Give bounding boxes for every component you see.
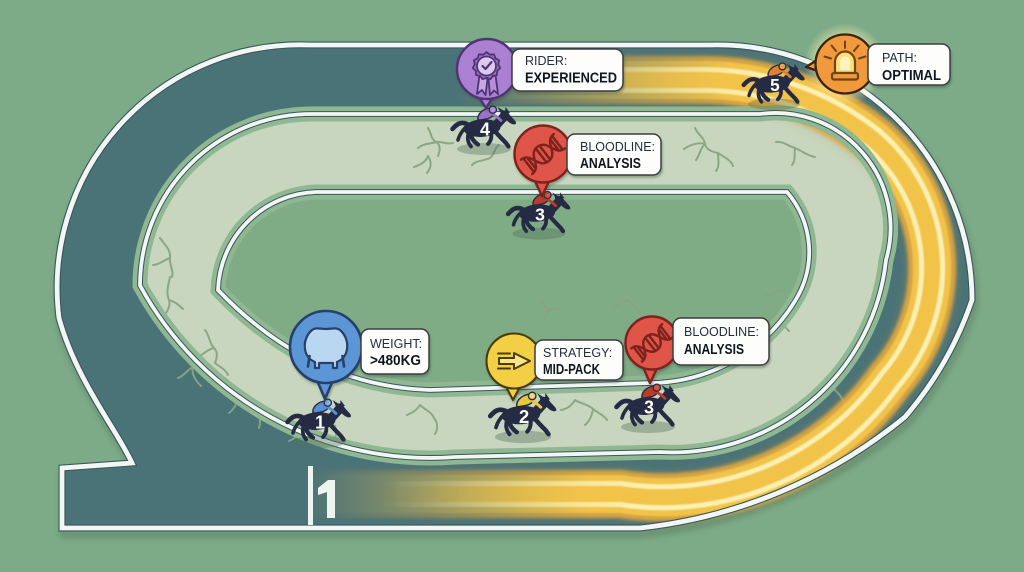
svg-text:BLOODLINE:: BLOODLINE: <box>684 325 759 339</box>
svg-text:ANALYSIS: ANALYSIS <box>580 156 641 172</box>
svg-text:3: 3 <box>535 204 545 224</box>
svg-text:OPTIMAL: OPTIMAL <box>882 68 941 84</box>
svg-text:RIDER:: RIDER: <box>525 54 567 68</box>
svg-text:>480KG: >480KG <box>370 353 421 369</box>
svg-text:MID-PACK: MID-PACK <box>543 362 600 378</box>
svg-text:1: 1 <box>315 413 325 433</box>
svg-text:2: 2 <box>519 406 529 427</box>
svg-text:5: 5 <box>770 75 780 95</box>
svg-text:3: 3 <box>644 398 654 418</box>
svg-text:BLOODLINE:: BLOODLINE: <box>580 140 655 154</box>
svg-text:PATH:: PATH: <box>882 51 917 65</box>
svg-text:ANALYSIS: ANALYSIS <box>684 342 744 358</box>
svg-text:4: 4 <box>480 120 490 140</box>
svg-text:WEIGHT:: WEIGHT: <box>370 337 422 351</box>
svg-text:EXPERIENCED: EXPERIENCED <box>525 71 617 87</box>
svg-text:STRATEGY:: STRATEGY: <box>543 346 612 360</box>
